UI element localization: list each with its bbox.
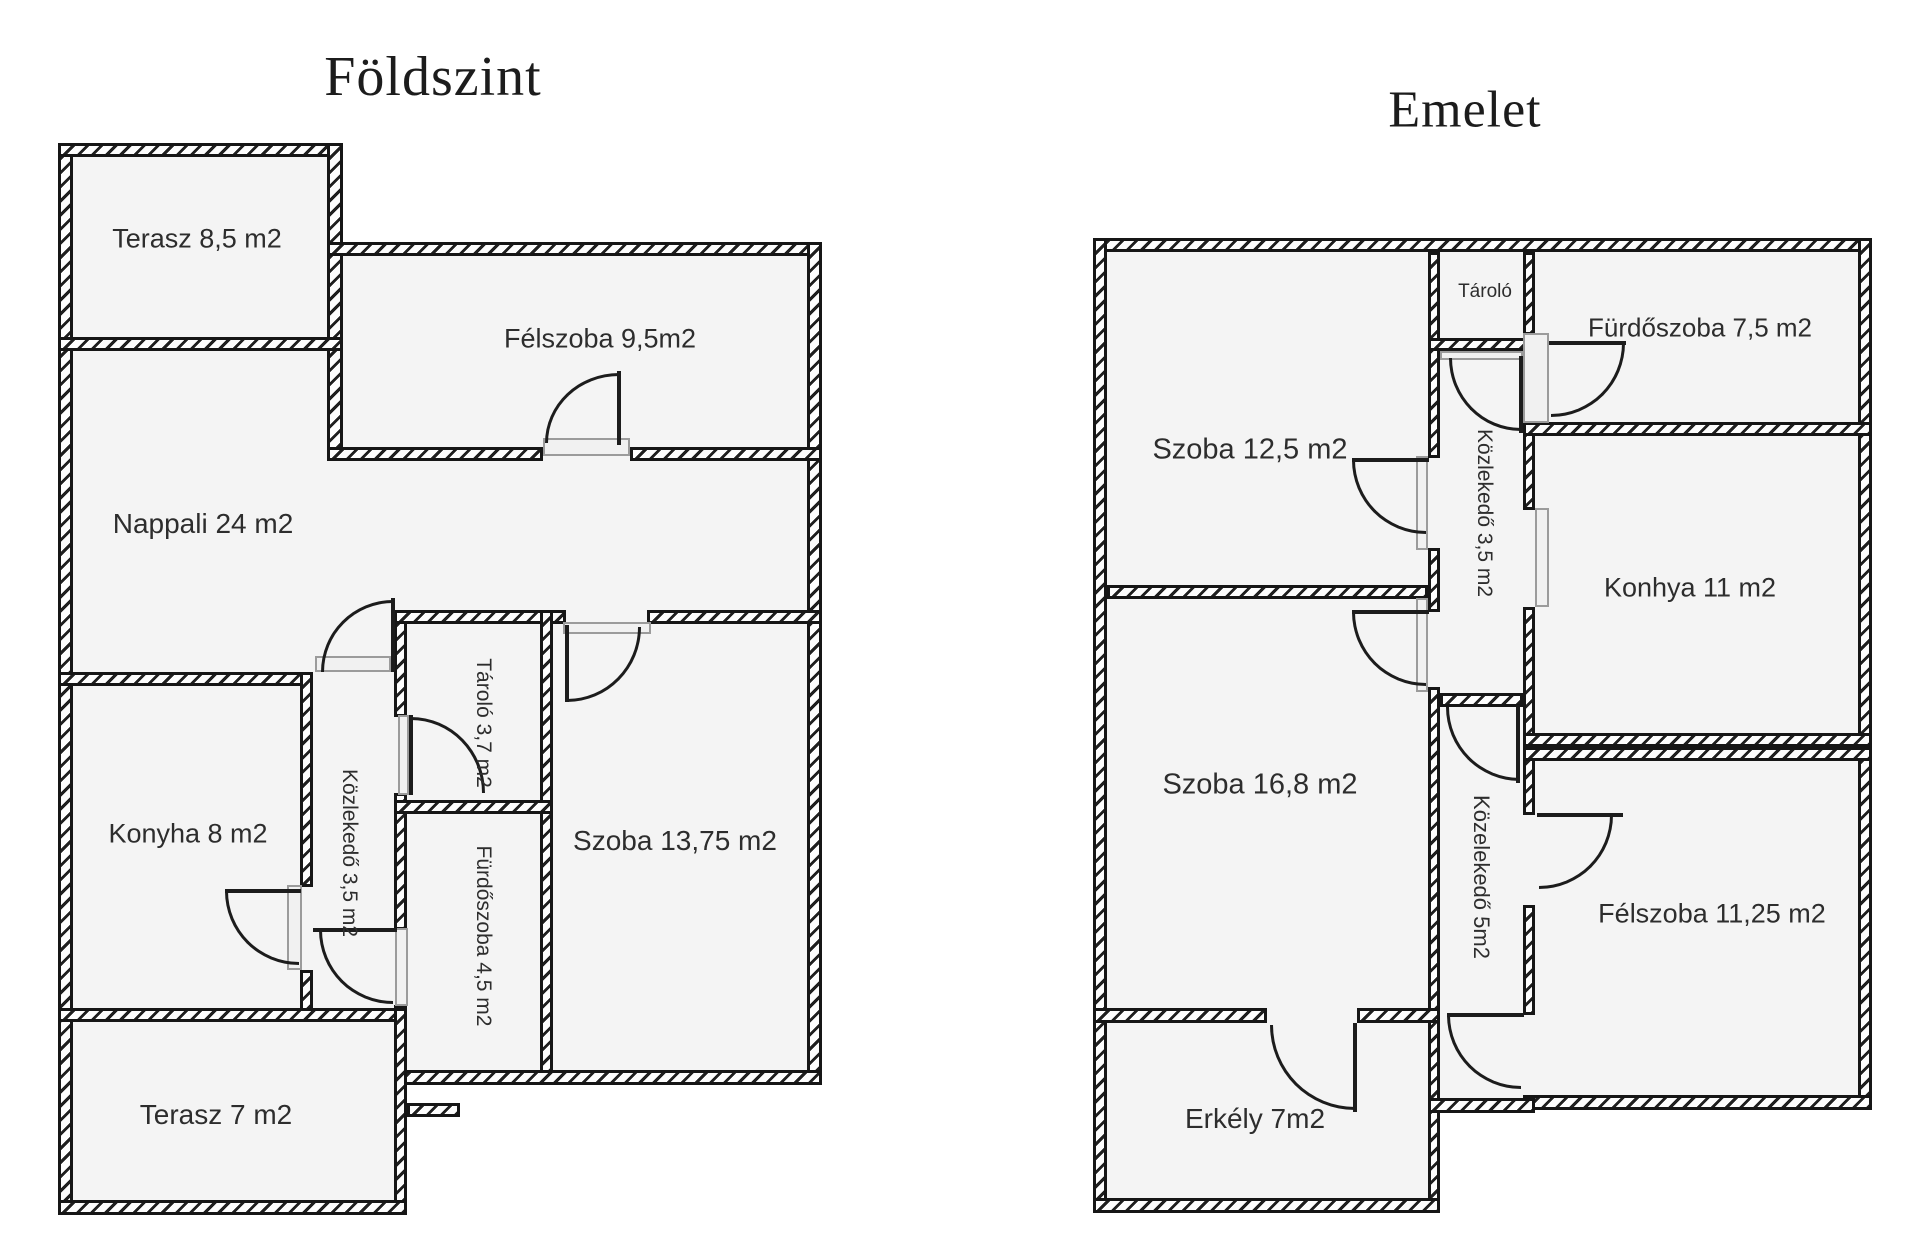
room-label-szoba-1375: Szoba 13,75 m2: [573, 825, 777, 857]
wall-segment: [407, 1103, 460, 1117]
floorplan-canvas: Földszint Emelet Terasz 8,5 m2 Félszoba …: [0, 0, 1920, 1259]
door-leaf: [1537, 813, 1623, 817]
wall-segment: [1523, 1095, 1872, 1110]
room-label-szoba-168: Szoba 16,8 m2: [1162, 769, 1357, 802]
wall-segment: [394, 800, 553, 814]
wall-segment: [327, 447, 543, 461]
wall-segment: [394, 1070, 822, 1085]
door-sill: [398, 715, 409, 795]
wall-segment: [1523, 607, 1535, 815]
ground-floor-title: Földszint: [324, 45, 541, 109]
room-label-tarolo: Tároló: [1458, 281, 1512, 303]
door-leaf: [1519, 356, 1523, 433]
wall-segment: [394, 610, 407, 717]
wall-segment: [647, 610, 822, 624]
wall-segment: [1523, 905, 1535, 1015]
wall-segment: [327, 143, 343, 461]
room-label-nappali-24: Nappali 24 m2: [113, 508, 294, 540]
room-label-felszoba-95: Félszoba 9,5m2: [504, 324, 696, 355]
wall-segment: [1428, 338, 1535, 351]
wall-segment: [58, 1008, 407, 1022]
wall-segment: [807, 242, 822, 1085]
door-leaf: [391, 598, 395, 672]
wall-segment: [1093, 238, 1872, 252]
room-label-erkely-7: Erkély 7m2: [1185, 1103, 1325, 1135]
wall-segment: [58, 337, 343, 351]
room-label-kozelekedo-5: Közelekedő 5m2: [1468, 795, 1494, 959]
door-leaf: [617, 371, 621, 445]
room-label-tarolo-37: Tároló 3,7 m2: [471, 658, 495, 788]
room-label-felszoba-1125: Félszoba 11,25 m2: [1598, 899, 1826, 930]
room-label-terasz-7: Terasz 7 m2: [140, 1099, 293, 1131]
door-leaf: [1352, 458, 1429, 462]
room-label-furdoszoba-75: Fürdőszoba 7,5 m2: [1588, 313, 1812, 344]
wall-segment: [1093, 1008, 1267, 1023]
wall-segment: [394, 1008, 407, 1215]
wall-segment: [1428, 687, 1440, 1213]
door-leaf: [1447, 1013, 1524, 1017]
room-label-furdoszoba-45: Fürdőszoba 4,5 m2: [471, 846, 495, 1027]
wall-segment: [1440, 693, 1523, 707]
wall-segment: [1523, 252, 1535, 335]
door-leaf: [565, 625, 569, 702]
wall-segment: [1357, 1008, 1440, 1023]
door-sill: [1535, 508, 1549, 607]
room-label-kozlekedo-35-emelet: Közlekedő 3,5 m2: [1472, 429, 1496, 597]
wall-segment: [1523, 733, 1872, 747]
wall-segment: [1093, 238, 1107, 1213]
wall-segment: [540, 610, 553, 1085]
wall-segment: [630, 447, 822, 461]
wall-segment: [58, 672, 313, 686]
wall-segment: [1428, 1098, 1535, 1113]
room-label-terasz-85: Terasz 8,5 m2: [112, 224, 282, 255]
room-label-szoba-125: Szoba 12,5 m2: [1152, 434, 1347, 467]
door-leaf: [1353, 1023, 1357, 1112]
wall-segment: [58, 143, 343, 157]
door-sill: [395, 928, 408, 1006]
room-label-konhya-11: Konhya 11 m2: [1604, 573, 1776, 604]
upper-floor-title: Emelet: [1388, 81, 1541, 140]
wall-segment: [1523, 422, 1872, 436]
wall-segment: [1093, 1198, 1440, 1213]
wall-segment: [1428, 548, 1440, 612]
door-leaf: [1352, 610, 1429, 614]
wall-segment: [58, 1200, 407, 1215]
wall-segment: [300, 672, 313, 887]
door-sill: [1523, 333, 1549, 423]
door-leaf: [409, 715, 413, 795]
wall-segment: [1858, 238, 1872, 1110]
wall-segment: [1523, 747, 1872, 761]
wall-segment: [327, 242, 822, 256]
wall-segment: [1107, 585, 1428, 599]
door-leaf: [1516, 705, 1520, 783]
room-label-konyha-8: Konyha 8 m2: [108, 819, 267, 850]
wall-segment: [1428, 252, 1440, 458]
door-leaf: [225, 889, 301, 893]
room-label-kozlekedo-35: Közlekedő 3,5 m2: [337, 769, 361, 937]
